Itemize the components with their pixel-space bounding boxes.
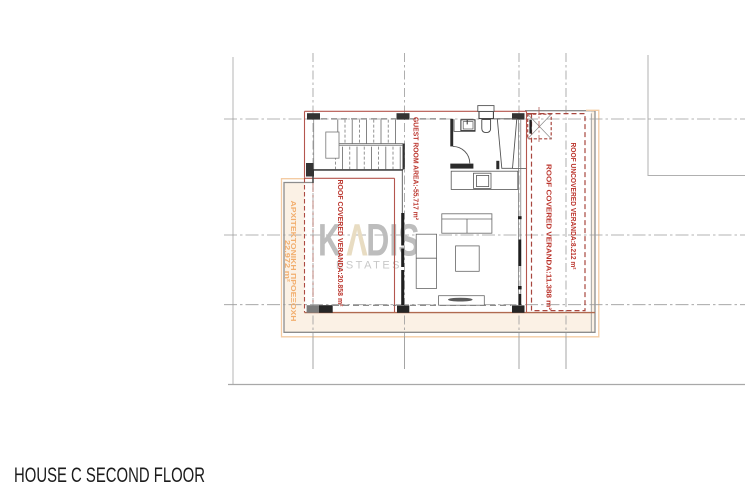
svg-text:ROOF COVERED VERANDA:11.388 m²: ROOF COVERED VERANDA:11.388 m² [545, 164, 554, 311]
svg-text:ROOF UNCOVERED VERANDA:8.212 m: ROOF UNCOVERED VERANDA:8.212 m² [569, 143, 578, 271]
svg-text:22.972 m²: 22.972 m² [283, 240, 290, 283]
svg-text:Λ: Λ [346, 216, 367, 266]
svg-text:ESTATES: ESTATES [336, 260, 402, 272]
svg-text:DIS: DIS [366, 216, 419, 266]
svg-text:HOUSE C SECOND FLOOR: HOUSE C SECOND FLOOR [14, 463, 205, 487]
svg-text:GUEST ROOM AREA:-55.717 m²: GUEST ROOM AREA:-55.717 m² [412, 117, 421, 221]
svg-text:ROOF COVERED VERANDA:20.858 m²: ROOF COVERED VERANDA:20.858 m² [336, 180, 343, 308]
